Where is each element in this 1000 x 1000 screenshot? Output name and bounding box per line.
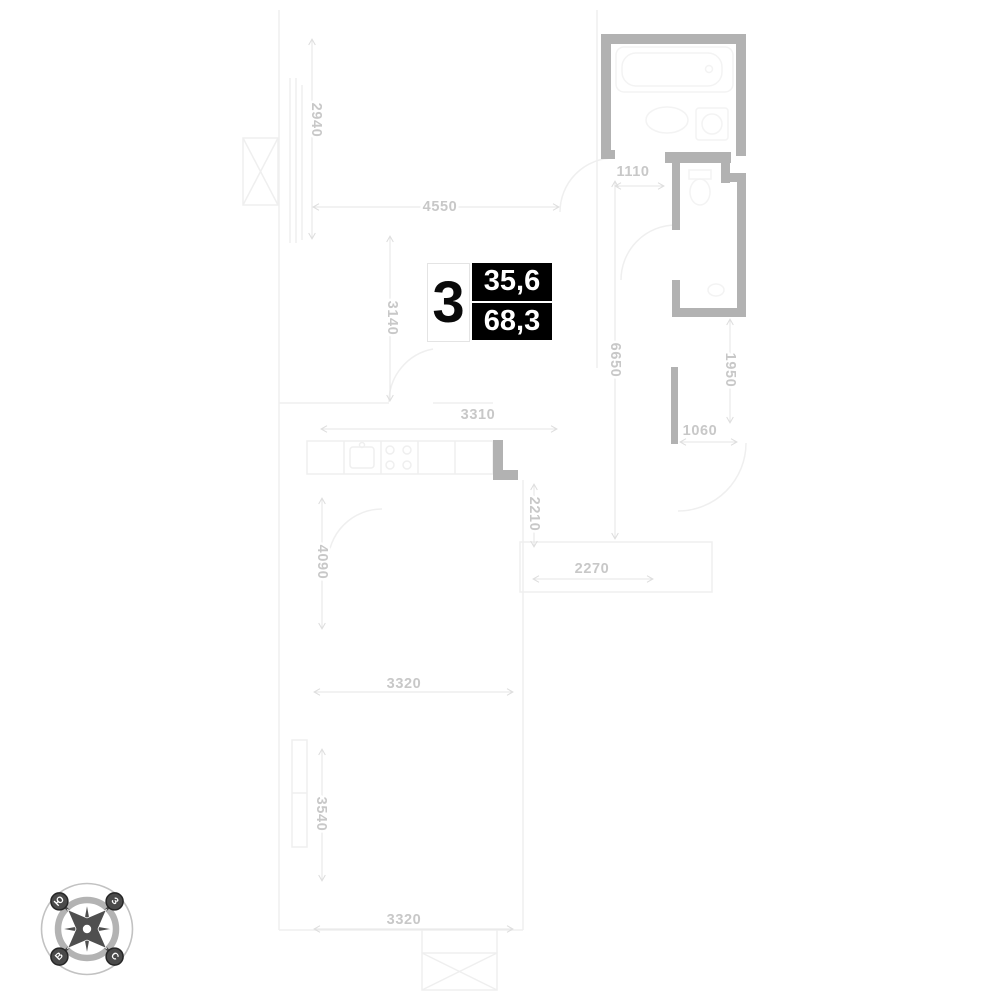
dim-4090: 4090 <box>314 545 330 580</box>
dim-1110: 1110 <box>616 164 649 180</box>
bathroom-left-wall <box>601 34 611 159</box>
wc-sink-icon <box>708 284 724 296</box>
l-wall-horizontal <box>493 470 518 480</box>
dim-3310: 3310 <box>461 407 496 423</box>
dim-3540: 3540 <box>313 797 329 832</box>
total-area-value: 68,3 <box>484 305 540 338</box>
bathroom-top-wall <box>601 34 746 44</box>
unit-number: 3 <box>432 269 464 336</box>
sink-icon <box>646 107 688 133</box>
walls <box>493 34 746 480</box>
dim-3140: 3140 <box>384 301 400 336</box>
dim-2210: 2210 <box>526 497 542 532</box>
dim-1060: 1060 <box>683 423 718 439</box>
wc-left-wall-upper <box>672 152 680 230</box>
toilet-icon <box>690 179 710 205</box>
floor-plan-canvas: 2940 4550 1110 3140 6650 1950 3310 1060 … <box>0 0 1000 1000</box>
bathroom-bottom-stub <box>601 150 615 159</box>
kitchen-counter <box>307 441 493 474</box>
washer-icon <box>696 108 728 140</box>
dim-6650: 6650 <box>607 343 623 378</box>
bathroom-right-wall <box>736 34 746 156</box>
kitchen-sink-icon <box>350 447 374 468</box>
wc-right-wall <box>737 182 746 317</box>
hall-wall-segment <box>671 367 678 444</box>
unit-area-boxes: 35,6 68,3 <box>472 263 552 342</box>
compass-rose-icon: Ю З В С <box>40 882 134 976</box>
window-bottom <box>422 930 497 990</box>
dim-2270: 2270 <box>575 561 610 577</box>
living-area-value: 35,6 <box>484 265 540 298</box>
unit-label[interactable]: 3 35,6 68,3 <box>427 263 552 342</box>
wc-bottom-wall <box>672 308 746 317</box>
living-area-box: 35,6 <box>472 263 552 301</box>
unit-number-box: 3 <box>427 263 470 342</box>
window-bottom-left <box>292 740 307 847</box>
wc-notch-horizontal <box>729 173 746 182</box>
dim-2940: 2940 <box>308 103 324 138</box>
window-top-left <box>243 138 278 205</box>
dim-3320-upper: 3320 <box>387 676 422 692</box>
dim-1950: 1950 <box>722 353 738 388</box>
dim-4550: 4550 <box>423 199 458 215</box>
stove-burners-icon <box>386 446 411 469</box>
total-area-box: 68,3 <box>472 303 552 341</box>
floor-plan-drawing: 2940 4550 1110 3140 6650 1950 3310 1060 … <box>0 0 1000 1000</box>
balcony-outline <box>520 542 712 592</box>
wc-notch-vertical <box>721 160 730 183</box>
dim-3320-lower: 3320 <box>387 912 422 928</box>
